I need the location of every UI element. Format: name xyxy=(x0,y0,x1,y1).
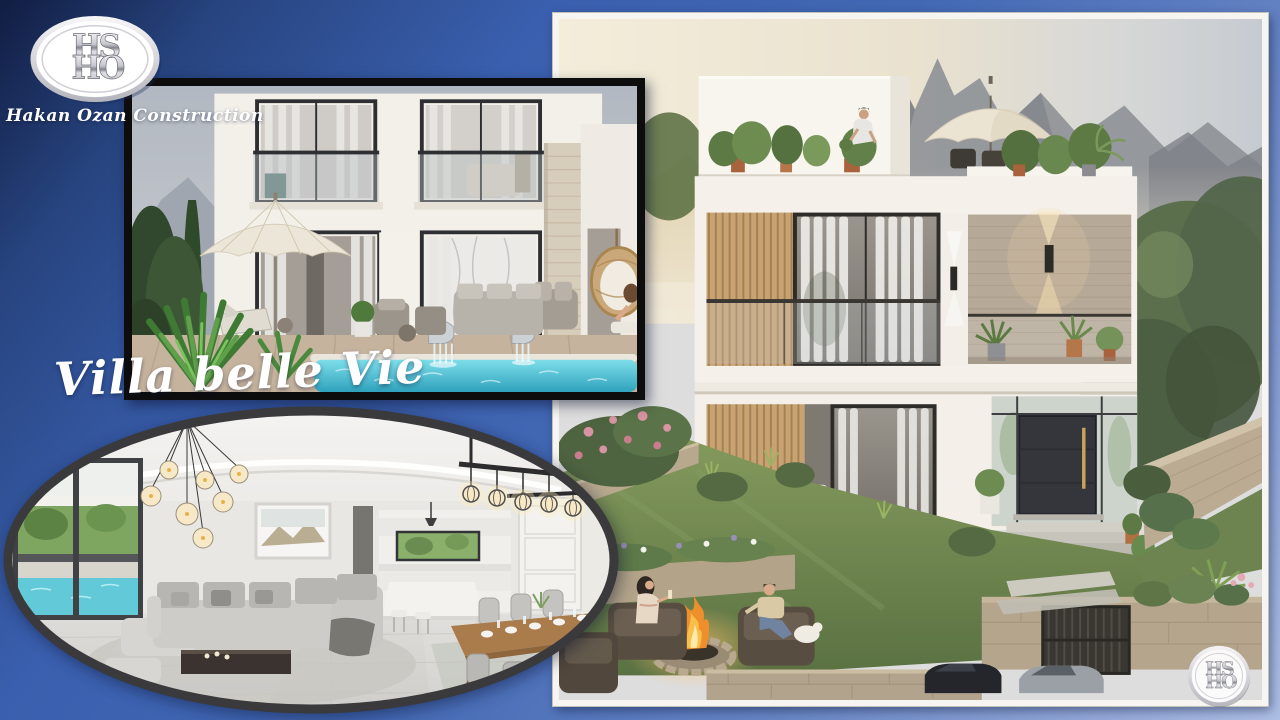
company-name: Hakan Ozan Construction xyxy=(6,106,226,126)
company-logo-emblem: HS HO xyxy=(26,14,164,104)
company-logo: HS HO xyxy=(26,14,164,104)
balcony-left xyxy=(249,101,383,209)
monogram-bottom: HO xyxy=(1205,671,1237,693)
watermark-logo: HS HO xyxy=(1186,644,1252,708)
entrance xyxy=(992,396,1138,526)
promo-poster: Villa belle Vie HS HO Hakan Ozan Constru… xyxy=(0,0,1280,720)
wall-art xyxy=(256,504,330,558)
watermark-emblem: HS HO xyxy=(1186,644,1252,708)
interior-photo xyxy=(1,406,621,714)
balcony-right xyxy=(414,101,548,209)
monogram-bottom: HO xyxy=(71,51,124,87)
interior-render xyxy=(1,406,621,714)
pool-view-window xyxy=(13,458,143,620)
coffee-table xyxy=(181,650,291,674)
upper-planter-railing xyxy=(968,314,1131,364)
main-villa-photo xyxy=(553,13,1268,706)
main-villa-render xyxy=(559,19,1262,700)
